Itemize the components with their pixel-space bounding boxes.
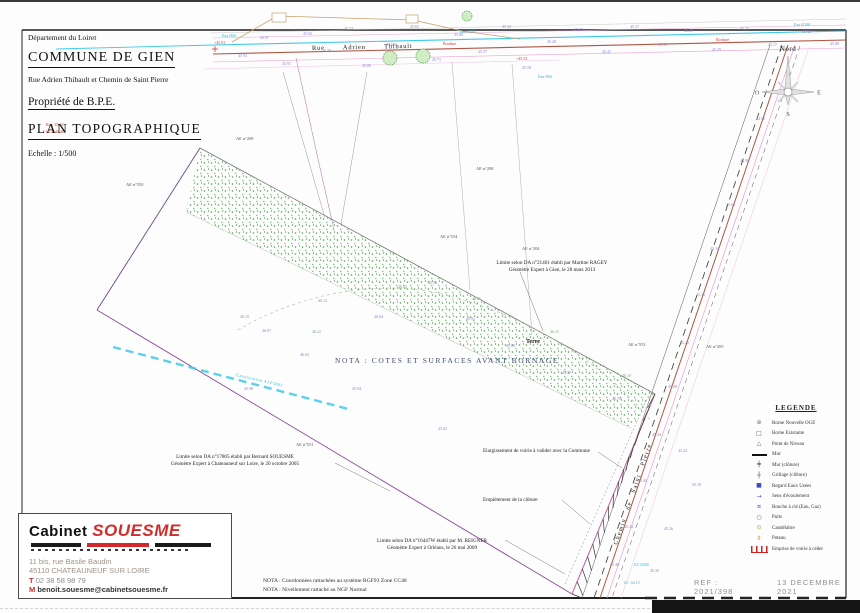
address-label: Rue Adrien Thibault et Chemin de Saint P…: [28, 75, 238, 84]
parcel-id-label: AE n°550: [126, 182, 144, 187]
compass-west-label: O: [755, 91, 760, 97]
spot-label: 45.58: [522, 65, 531, 70]
nota-center-label: NOTA : COTES ET SURFACES AVANT BORNAGE: [335, 356, 559, 365]
spot-label: 45.24: [678, 448, 687, 453]
sens-ecoulement-icon: →: [750, 493, 768, 501]
legend-item: ⊕Borne Nouvelle OGE: [750, 418, 842, 429]
voirie-icon: [750, 546, 768, 553]
limit-reigner-line2: Géomètre Expert à Orléans, le 26 mai 200…: [387, 545, 478, 551]
spot-label: 46.10: [622, 373, 631, 378]
spot-label: 45.22: [680, 340, 689, 345]
legend-item: △Point de Niveau: [750, 439, 842, 450]
spot-label: fil : 44.10: [624, 580, 640, 585]
spot-label: 45.82: [303, 31, 312, 36]
spot-label: 45.16: [696, 292, 705, 297]
phone-icon: T: [29, 576, 34, 585]
legend-item: ╪Mur (clôture): [750, 460, 842, 471]
cabinet-address1: 11 bis, rue Basile Baudin: [29, 557, 231, 567]
spot-label: 46.15: [550, 329, 559, 334]
spot-label: 45.49: [547, 39, 556, 44]
spot-label: 46.25: [398, 284, 407, 289]
spot-label: 45.65: [410, 24, 419, 29]
legend-item: Mur: [750, 450, 842, 461]
spot-label: 45.91: [466, 316, 475, 321]
spot-label: Eau Ø60: [538, 74, 552, 79]
road-name-label: Chemin de Saint Pierre: [613, 443, 653, 546]
puits-icon: ○: [750, 514, 768, 522]
water-main-label: Canalisation AEP Ø63: [236, 372, 284, 388]
note-leveling: NOTA : Nivellement rattaché au NGF Norma…: [263, 586, 407, 595]
spot-label: 46.12: [318, 298, 327, 303]
bouche-cle-icon: ¤: [750, 503, 768, 511]
spot-label: 46.07: [262, 328, 271, 333]
ref-number: REF : 2021/398: [694, 578, 757, 596]
legend-item-label: Regard Eaux Usées: [772, 484, 811, 489]
spot-label: 45.74: [344, 26, 353, 31]
spot-label: Eau Ø100: [460, 29, 476, 34]
department-label: Département du Loiret: [28, 33, 238, 42]
spot-label: 45.57: [478, 49, 487, 54]
limit-ragey-line2: Géomètre Expert à Gien, le 28 mars 2013: [509, 267, 596, 273]
spot-label: 45.28: [668, 384, 677, 389]
cabinet-phone: 02 38 58 98 79: [36, 576, 86, 585]
elargissement-label: Elargissement de voirie à valider avec l…: [483, 448, 591, 454]
spot-label: 45.78: [562, 370, 571, 375]
cabinet-name: SOUESME: [92, 521, 181, 540]
limit-reigner-line1: Limite selon DA n°16447W établi par M. R…: [377, 537, 488, 544]
legend-item-label: Mur: [772, 452, 781, 457]
parcel-id-label: AE n°554: [440, 234, 458, 239]
legend-item-label: Grillage (clôture): [772, 473, 807, 478]
spot-label: EU Ø200: [634, 562, 649, 567]
spot-label: 45.82: [438, 426, 447, 431]
legend-item-label: Point de Niveau: [772, 442, 804, 447]
spot-label: 46.18: [240, 314, 249, 319]
legend-item-label: Bouche à clé (Eau, Gaz): [772, 505, 821, 510]
scan-artifact-top: [0, 0, 860, 2]
spot-label: 45.45: [574, 27, 583, 32]
legend-item: ⊙Candélabre: [750, 523, 842, 534]
cabinet-name-prefix: Cabinet: [29, 523, 88, 540]
logo-bars: [31, 543, 231, 547]
spot-label: 45.34: [652, 432, 661, 437]
vegetation-band: [186, 149, 655, 428]
spot-label: 45.30: [650, 568, 659, 573]
spot-label: 45.04: [726, 202, 735, 207]
scan-artifact-bottom: [0, 608, 650, 609]
legend-item-label: Candélabre: [772, 526, 795, 531]
owner-label: Propriété de B.P.E.: [28, 96, 115, 110]
commune-title: COMMUNE DE GIEN: [28, 50, 175, 68]
spot-label: 45.33: [658, 42, 667, 47]
legend-item-label: Mur (clôture): [772, 463, 799, 468]
road-widening-hatch: [572, 394, 655, 598]
scan-artifact-corner: [652, 600, 860, 613]
spot-label: 45.71: [432, 57, 441, 62]
spot-label: Eau Ø100: [794, 22, 810, 27]
spot-label: 46.21: [472, 296, 481, 301]
spot-label: 45.80: [362, 63, 371, 68]
limit-souesme-line2: Géomètre Expert à Chateauneuf sur Loire,…: [171, 460, 300, 467]
grillage-icon: ┼: [750, 472, 768, 480]
regard-eu-icon: ■: [750, 482, 768, 490]
parcel-id-label: AE n°204: [522, 246, 540, 251]
ref-block: REF : 2021/398 13 DECEMBRE 2021: [694, 578, 860, 596]
legend-item-label: Poteau: [772, 536, 786, 541]
spot-label: 45.91: [282, 61, 291, 66]
water-main-line: [113, 347, 352, 410]
tree-icon: [383, 11, 472, 65]
spot-label: 45.69: [386, 42, 395, 47]
spot-label: 45.17: [768, 42, 777, 47]
spot-label: 45.85: [506, 343, 515, 348]
note-coordinates: NOTA : Coordonnées rattachées au système…: [263, 577, 407, 586]
compass-north-label: Nord: [780, 45, 796, 53]
spot-label: 45.52: [502, 24, 511, 29]
spot-label: 45.10: [710, 246, 719, 251]
spot-label: 45.08: [830, 41, 839, 46]
compass-east-label: E: [817, 91, 821, 97]
legend-item: ¤Bouche à clé (Eau, Gaz): [750, 502, 842, 513]
spot-label: 45.41: [602, 49, 611, 54]
legend-item: ■Regard Eaux Usées: [750, 481, 842, 492]
spot-label: 46.02: [300, 352, 309, 357]
legend-item-label: Puits: [772, 515, 782, 520]
legend-item-label: Borne Nouvelle OGE: [772, 421, 815, 426]
borne-oge-icon: ⊕: [750, 419, 768, 427]
legend-item: ○Puits: [750, 513, 842, 524]
cabinet-email: benoit.souesme@cabinetsouesme.fr: [37, 585, 168, 594]
plan-title: PLAN TOPOGRAPHIQUE: [28, 121, 201, 140]
parcel-id-label: AE n°205: [706, 344, 724, 349]
scale-label: Echelle : 1/500: [28, 149, 238, 158]
spot-label: 45.87: [260, 35, 269, 40]
ref-date: 13 DECEMBRE 2021: [777, 578, 860, 596]
spot-label: 45.25: [712, 47, 721, 52]
parcel-id-label: AE n°209: [236, 136, 254, 141]
spot-label: 45.29: [684, 28, 693, 33]
legend-title: LEGENDE: [750, 404, 842, 412]
spot-label: 45.94: [352, 386, 361, 391]
cabinet-address2: 45110 CHATEAUNEUF SUR LOIRE: [29, 566, 231, 576]
spot-label: 45.12: [802, 29, 811, 34]
mail-icon: M: [29, 585, 35, 594]
title-block: Département du Loiret COMMUNE DE GIEN Ru…: [28, 33, 238, 158]
spot-label: 46.04: [374, 314, 383, 319]
legend-item: ┼Grillage (clôture): [750, 471, 842, 482]
spot-label: 44.92: [756, 116, 765, 121]
spot-label: 45.93: [238, 53, 247, 58]
spot-label: 44.98: [740, 158, 749, 163]
terre-label: Terre: [526, 339, 540, 345]
candelabre-icon: ⊙: [750, 524, 768, 532]
legend: LEGENDE ⊕Borne Nouvelle OGE□Borne Exista…: [750, 404, 842, 555]
spot-label: 45.96: [428, 280, 437, 285]
spot-label: 45.44: [624, 524, 633, 529]
legend-item-label: Emprise de voirie à céder: [772, 547, 823, 552]
spot-label: 45.40: [638, 478, 647, 483]
limit-souesme-line1: Limite selon DA n°17805 établi par Berna…: [176, 453, 294, 460]
spot-label: +45.33: [516, 56, 527, 61]
borne-existante-icon: □: [750, 430, 768, 438]
mur-icon: [750, 454, 768, 456]
cabinet-souesme-block: Cabinet SOUESME 11 bis, rue Basile Baudi…: [18, 513, 232, 599]
spot-label: 45.21: [740, 26, 749, 31]
parcel-id-label: AE n°553: [628, 342, 646, 347]
spot-label: 45.37: [630, 24, 639, 29]
spot-label: 45.98: [244, 386, 253, 391]
spot-label: 45.78: [322, 48, 331, 53]
spot-label: Bordure: [443, 41, 456, 46]
legend-item-label: Borne Existante: [772, 431, 804, 436]
north-arrow-icon: Nord O E S: [755, 45, 821, 118]
plan-sheet: Rue Adrien Thibault Chemin de Saint Pier…: [0, 0, 860, 613]
legend-item: →Sens d'écoulement: [750, 492, 842, 503]
legend-item: □Borne Existante: [750, 429, 842, 440]
spot-label: Bordure: [716, 37, 729, 42]
point-niveau-icon: △: [750, 440, 768, 448]
poteau-icon: ‡: [750, 535, 768, 543]
spot-label: 45.18: [692, 482, 701, 487]
spot-label: 45.70: [612, 396, 621, 401]
legend-item-label: Sens d'écoulement: [772, 494, 809, 499]
parcel-id-label: AE n°551: [296, 442, 314, 447]
spot-label: 46.22: [312, 329, 321, 334]
compass-south-label: S: [786, 112, 789, 118]
spot-label: 45.48: [610, 562, 619, 567]
footer-notes: NOTA : Coordonnées rattachées au système…: [263, 577, 407, 594]
parcel-id-label: AE n°208: [476, 166, 494, 171]
legend-item: ‡Poteau: [750, 534, 842, 545]
limit-ragey-line1: Limite selon DA n°21461 établi par Marti…: [496, 259, 607, 266]
logo-dots: [31, 549, 191, 551]
mur-cloture-icon: ╪: [750, 461, 768, 469]
legend-item: Emprise de voirie à céder: [750, 544, 842, 555]
spot-label: 45.26: [664, 526, 673, 531]
empietement-label: Empiétement de la clôture: [483, 497, 538, 503]
